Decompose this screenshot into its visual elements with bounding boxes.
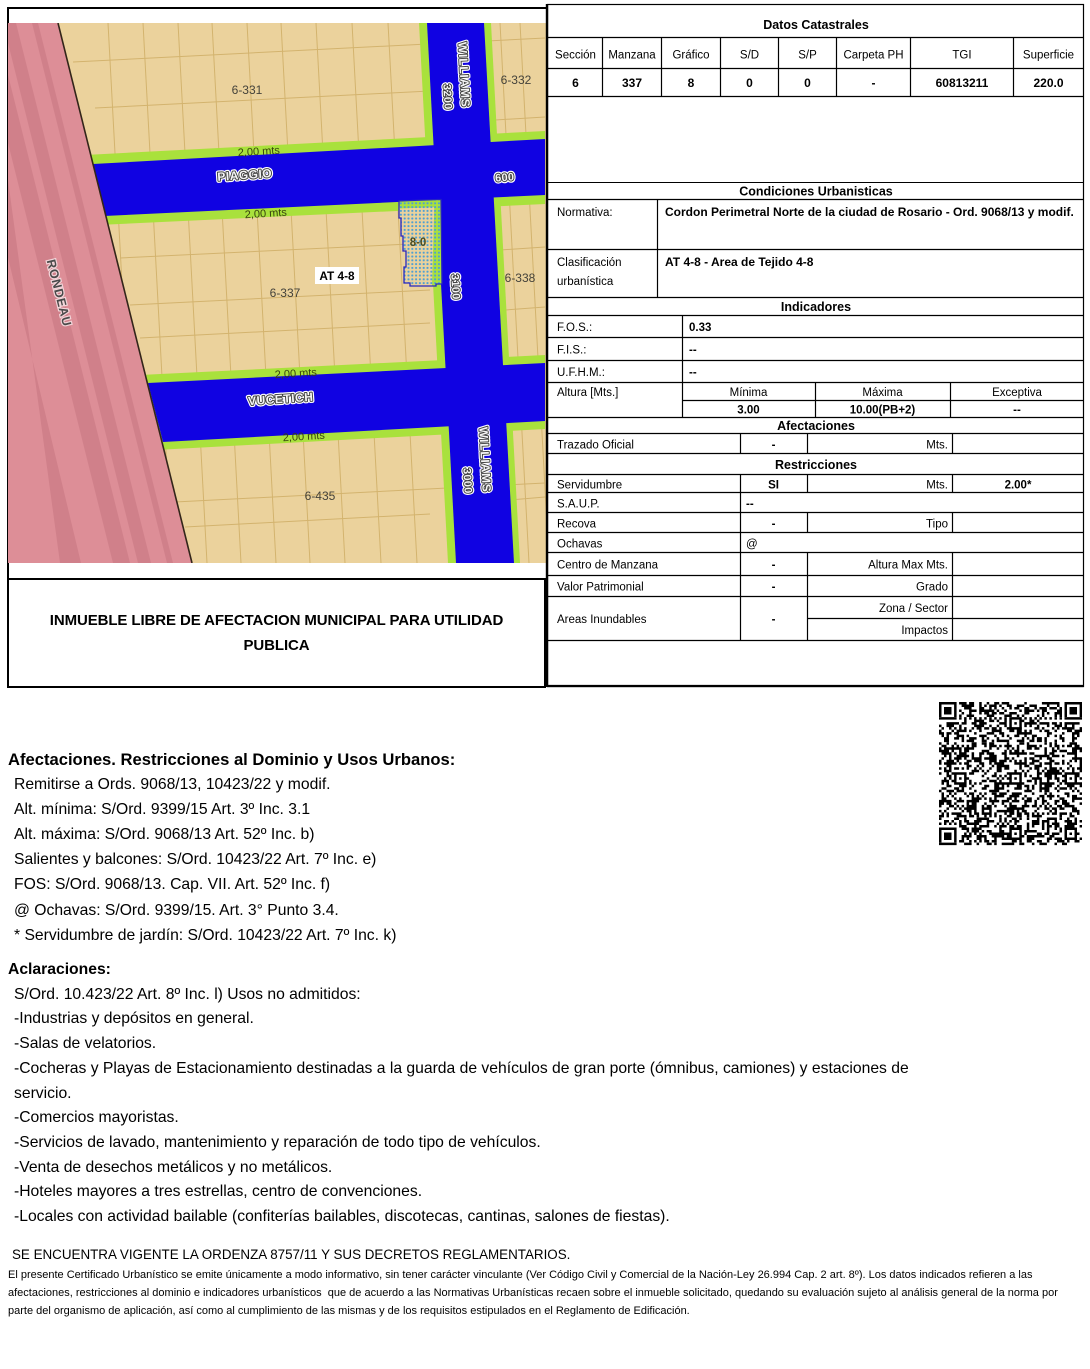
svg-text:10.00(PB+2): 10.00(PB+2) — [850, 405, 916, 417]
svg-text:6: 6 — [572, 76, 579, 90]
svg-text:Mts.: Mts. — [926, 440, 948, 452]
svg-text:urbanística: urbanística — [557, 276, 614, 288]
svg-text:Condiciones Urbanisticas: Condiciones Urbanisticas — [739, 185, 893, 199]
svg-text:Cordon Perimetral Norte de la: Cordon Perimetral Norte de la ciudad de … — [665, 205, 1074, 219]
svg-text:SI: SI — [768, 480, 779, 492]
svg-text:Centro de Manzana: Centro de Manzana — [557, 560, 659, 572]
svg-text:F.I.S.:: F.I.S.: — [557, 345, 586, 357]
svg-text:S.A.U.P.: S.A.U.P. — [557, 499, 600, 511]
svg-text:220.0: 220.0 — [1033, 76, 1063, 90]
svg-text:0: 0 — [746, 76, 753, 90]
svg-text:Altura Max Mts.: Altura Max Mts. — [868, 560, 948, 572]
svg-text:Clasificación: Clasificación — [557, 257, 622, 269]
svg-text:F.O.S.:: F.O.S.: — [557, 322, 592, 334]
svg-text:Recova: Recova — [557, 519, 597, 531]
svg-text:-: - — [772, 440, 776, 452]
svg-text:8: 8 — [688, 76, 695, 90]
svg-text:@: @ — [746, 539, 758, 551]
svg-text:Grado: Grado — [916, 582, 948, 594]
svg-text:Valor Patrimonial: Valor Patrimonial — [557, 582, 644, 594]
svg-text:Indicadores: Indicadores — [781, 300, 851, 314]
svg-text:S/P: S/P — [798, 50, 817, 62]
svg-text:Ochavas: Ochavas — [557, 539, 603, 551]
svg-text:-: - — [772, 560, 776, 572]
svg-text:Máxima: Máxima — [862, 387, 903, 399]
svg-text:Impactos: Impactos — [901, 625, 948, 637]
svg-text:Mts.: Mts. — [926, 480, 948, 492]
svg-text:Carpeta PH: Carpeta PH — [843, 50, 903, 62]
svg-text:-: - — [772, 582, 776, 594]
svg-text:-: - — [772, 614, 776, 626]
svg-text:AT 4-8 - Area de Tejido 4-8: AT 4-8 - Area de Tejido 4-8 — [665, 255, 814, 269]
svg-text:Datos Catastrales: Datos Catastrales — [763, 18, 869, 32]
svg-text:337: 337 — [622, 76, 642, 90]
svg-text:Normativa:: Normativa: — [557, 207, 613, 219]
svg-text:60813211: 60813211 — [936, 76, 989, 90]
svg-text:Afectaciones: Afectaciones — [777, 419, 855, 433]
svg-text:Servidumbre: Servidumbre — [557, 480, 622, 492]
svg-text:Tipo: Tipo — [926, 519, 948, 531]
svg-text:Gráfico: Gráfico — [672, 50, 709, 62]
svg-text:--: -- — [689, 367, 697, 379]
svg-text:3.00: 3.00 — [737, 405, 759, 417]
svg-text:Zona / Sector: Zona / Sector — [879, 603, 948, 615]
svg-text:S/D: S/D — [740, 50, 759, 62]
svg-text:2.00*: 2.00* — [1005, 480, 1032, 492]
svg-text:TGI: TGI — [952, 50, 971, 62]
svg-text:Trazado Oficial: Trazado Oficial — [557, 440, 634, 452]
svg-text:Superficie: Superficie — [1023, 50, 1074, 62]
svg-text:Altura [Mts.]: Altura [Mts.] — [557, 387, 618, 399]
svg-text:Exceptiva: Exceptiva — [992, 387, 1042, 399]
svg-text:Manzana: Manzana — [608, 50, 656, 62]
svg-text:--: -- — [746, 499, 754, 511]
svg-text:Areas Inundables: Areas Inundables — [557, 614, 647, 626]
svg-text:-: - — [872, 76, 876, 90]
svg-text:Sección: Sección — [555, 50, 596, 62]
svg-text:Mínima: Mínima — [730, 387, 768, 399]
svg-text:--: -- — [689, 345, 697, 357]
svg-text:-: - — [772, 519, 776, 531]
svg-text:Restricciones: Restricciones — [775, 458, 857, 472]
svg-text:0.33: 0.33 — [689, 322, 711, 334]
svg-text:U.F.H.M.:: U.F.H.M.: — [557, 367, 605, 379]
svg-text:--: -- — [1013, 405, 1021, 417]
svg-text:0: 0 — [804, 76, 811, 90]
